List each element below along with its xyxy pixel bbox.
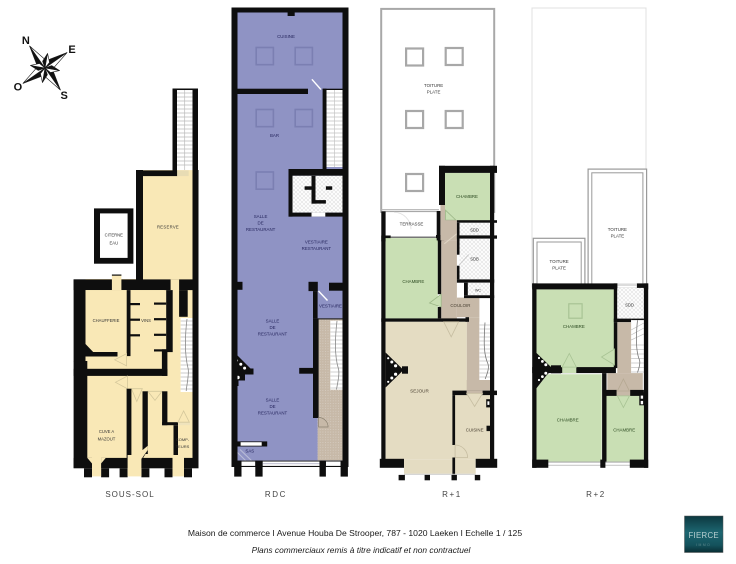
svg-text:RESERVE: RESERVE xyxy=(157,225,179,230)
svg-text:COMP-: COMP- xyxy=(176,437,190,442)
svg-text:CUVE A: CUVE A xyxy=(99,429,115,434)
svg-text:TERRASSE: TERRASSE xyxy=(400,222,424,227)
svg-text:VESTIAIRE: VESTIAIRE xyxy=(305,240,328,245)
svg-text:O: O xyxy=(14,82,23,94)
svg-text:DE: DE xyxy=(269,325,275,330)
svg-text:RESTAURANT: RESTAURANT xyxy=(246,227,276,232)
svg-text:WC: WC xyxy=(475,289,481,293)
svg-text:CHAUFFERIE: CHAUFFERIE xyxy=(93,318,120,323)
svg-text:TOITURE: TOITURE xyxy=(549,259,568,264)
svg-text:RDC: RDC xyxy=(265,490,287,499)
svg-text:COULOIR: COULOIR xyxy=(450,303,470,308)
svg-text:CUISINE: CUISINE xyxy=(277,34,295,39)
svg-text:MAZOUT: MAZOUT xyxy=(98,437,116,442)
svg-text:SAS: SAS xyxy=(245,449,254,454)
svg-text:E: E xyxy=(68,44,75,56)
svg-text:TOITURE: TOITURE xyxy=(608,227,627,232)
svg-text:PLATE: PLATE xyxy=(427,90,441,95)
svg-text:EAU: EAU xyxy=(109,241,118,246)
svg-text:RESTAURANT: RESTAURANT xyxy=(258,411,288,416)
svg-text:RESTAURANT: RESTAURANT xyxy=(258,332,288,337)
svg-text:SALLE: SALLE xyxy=(266,398,280,403)
svg-text:CHAMBRE: CHAMBRE xyxy=(613,428,635,433)
svg-text:CHAMBRE: CHAMBRE xyxy=(563,324,585,329)
svg-text:VINS: VINS xyxy=(141,318,151,323)
svg-text:SALLE: SALLE xyxy=(254,214,268,219)
svg-text:IMMO: IMMO xyxy=(696,543,711,547)
svg-text:R+2: R+2 xyxy=(586,490,606,499)
svg-text:BAR: BAR xyxy=(270,133,279,138)
svg-text:FIERCE: FIERCE xyxy=(688,531,718,540)
svg-text:CHAMBRE: CHAMBRE xyxy=(402,279,424,284)
svg-text:CHAMBRE: CHAMBRE xyxy=(456,194,478,199)
svg-text:CITERNE: CITERNE xyxy=(105,233,124,238)
svg-text:SDD: SDD xyxy=(625,303,634,308)
svg-text:DE: DE xyxy=(269,404,275,409)
svg-text:SDB: SDB xyxy=(470,257,479,262)
svg-text:Plans commerciaux remis à titr: Plans commerciaux remis à titre indicati… xyxy=(252,545,472,555)
svg-text:SDD: SDD xyxy=(470,228,479,233)
svg-text:CHAMBRE: CHAMBRE xyxy=(557,418,579,423)
svg-text:CUISINE: CUISINE xyxy=(466,428,484,433)
svg-text:R+1: R+1 xyxy=(442,490,462,499)
svg-text:PLATE: PLATE xyxy=(552,266,566,271)
svg-text:SEJOUR: SEJOUR xyxy=(410,389,429,394)
svg-text:RESTAURANT: RESTAURANT xyxy=(302,246,332,251)
svg-text:TEURS: TEURS xyxy=(176,444,190,449)
svg-text:TOITURE: TOITURE xyxy=(424,83,443,88)
svg-text:S: S xyxy=(61,90,68,102)
svg-text:VESTIAIRE: VESTIAIRE xyxy=(319,304,342,309)
svg-text:N: N xyxy=(22,35,30,47)
svg-text:DE: DE xyxy=(258,221,264,226)
svg-text:PLATE: PLATE xyxy=(611,234,625,239)
svg-text:SOUS-SOL: SOUS-SOL xyxy=(105,490,154,499)
svg-text:Maison de commerce I Avenue: Maison de commerce I Avenue Houba De Str… xyxy=(188,528,522,538)
svg-text:SALLE: SALLE xyxy=(266,319,280,324)
